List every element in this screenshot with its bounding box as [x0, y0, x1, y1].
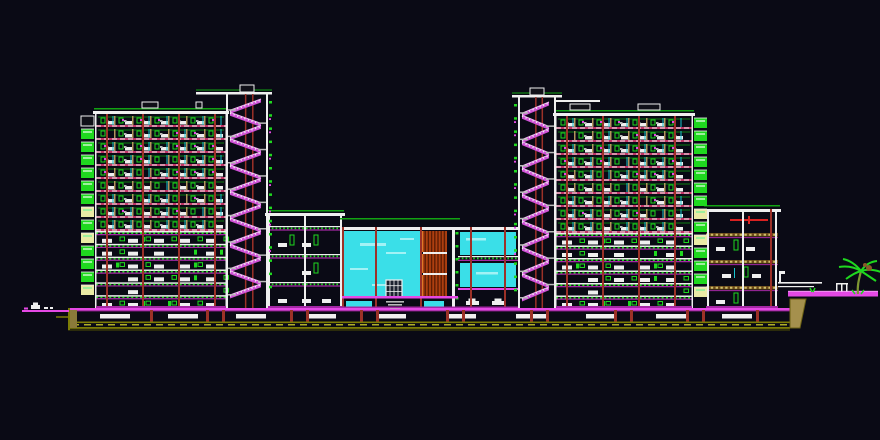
cad-drawing-viewport [0, 0, 880, 440]
glass-atrium [340, 218, 460, 309]
cad-drawing-canvas[interactable] [0, 0, 880, 440]
